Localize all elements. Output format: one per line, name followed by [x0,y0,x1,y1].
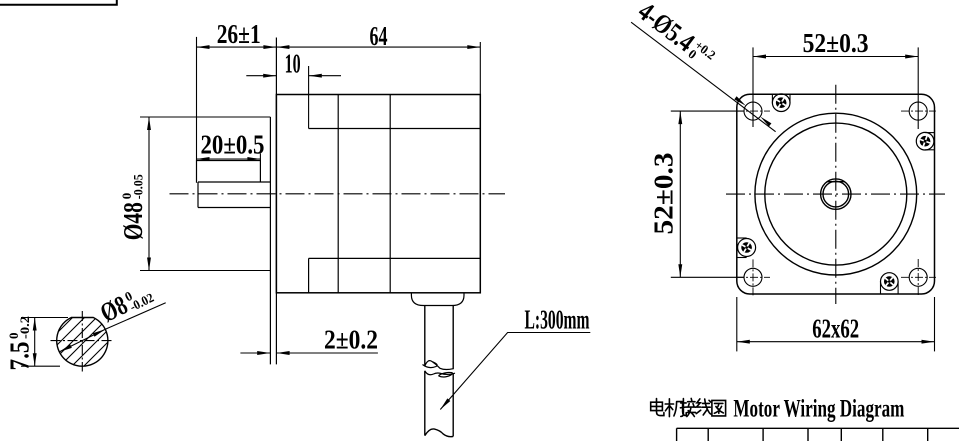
svg-text:52±0.3: 52±0.3 [649,153,679,235]
svg-text:-0.05: -0.05 [131,174,146,199]
svg-text:Ø48: Ø48 [118,202,148,240]
svg-text:26±1: 26±1 [217,19,261,49]
svg-text:L:300mm: L:300mm [525,305,590,335]
svg-text:10: 10 [285,49,301,79]
svg-text:64: 64 [370,21,388,51]
svg-text:2±0.2: 2±0.2 [324,325,378,355]
svg-text:7.5: 7.5 [5,342,35,371]
svg-text:-0.2: -0.2 [17,316,32,339]
svg-text:52±0.3: 52±0.3 [803,28,869,58]
svg-text:20±0.5: 20±0.5 [201,130,265,160]
svg-text:Motor Wiring Diagram: Motor Wiring Diagram [733,395,904,422]
svg-text:62x62: 62x62 [812,314,859,344]
